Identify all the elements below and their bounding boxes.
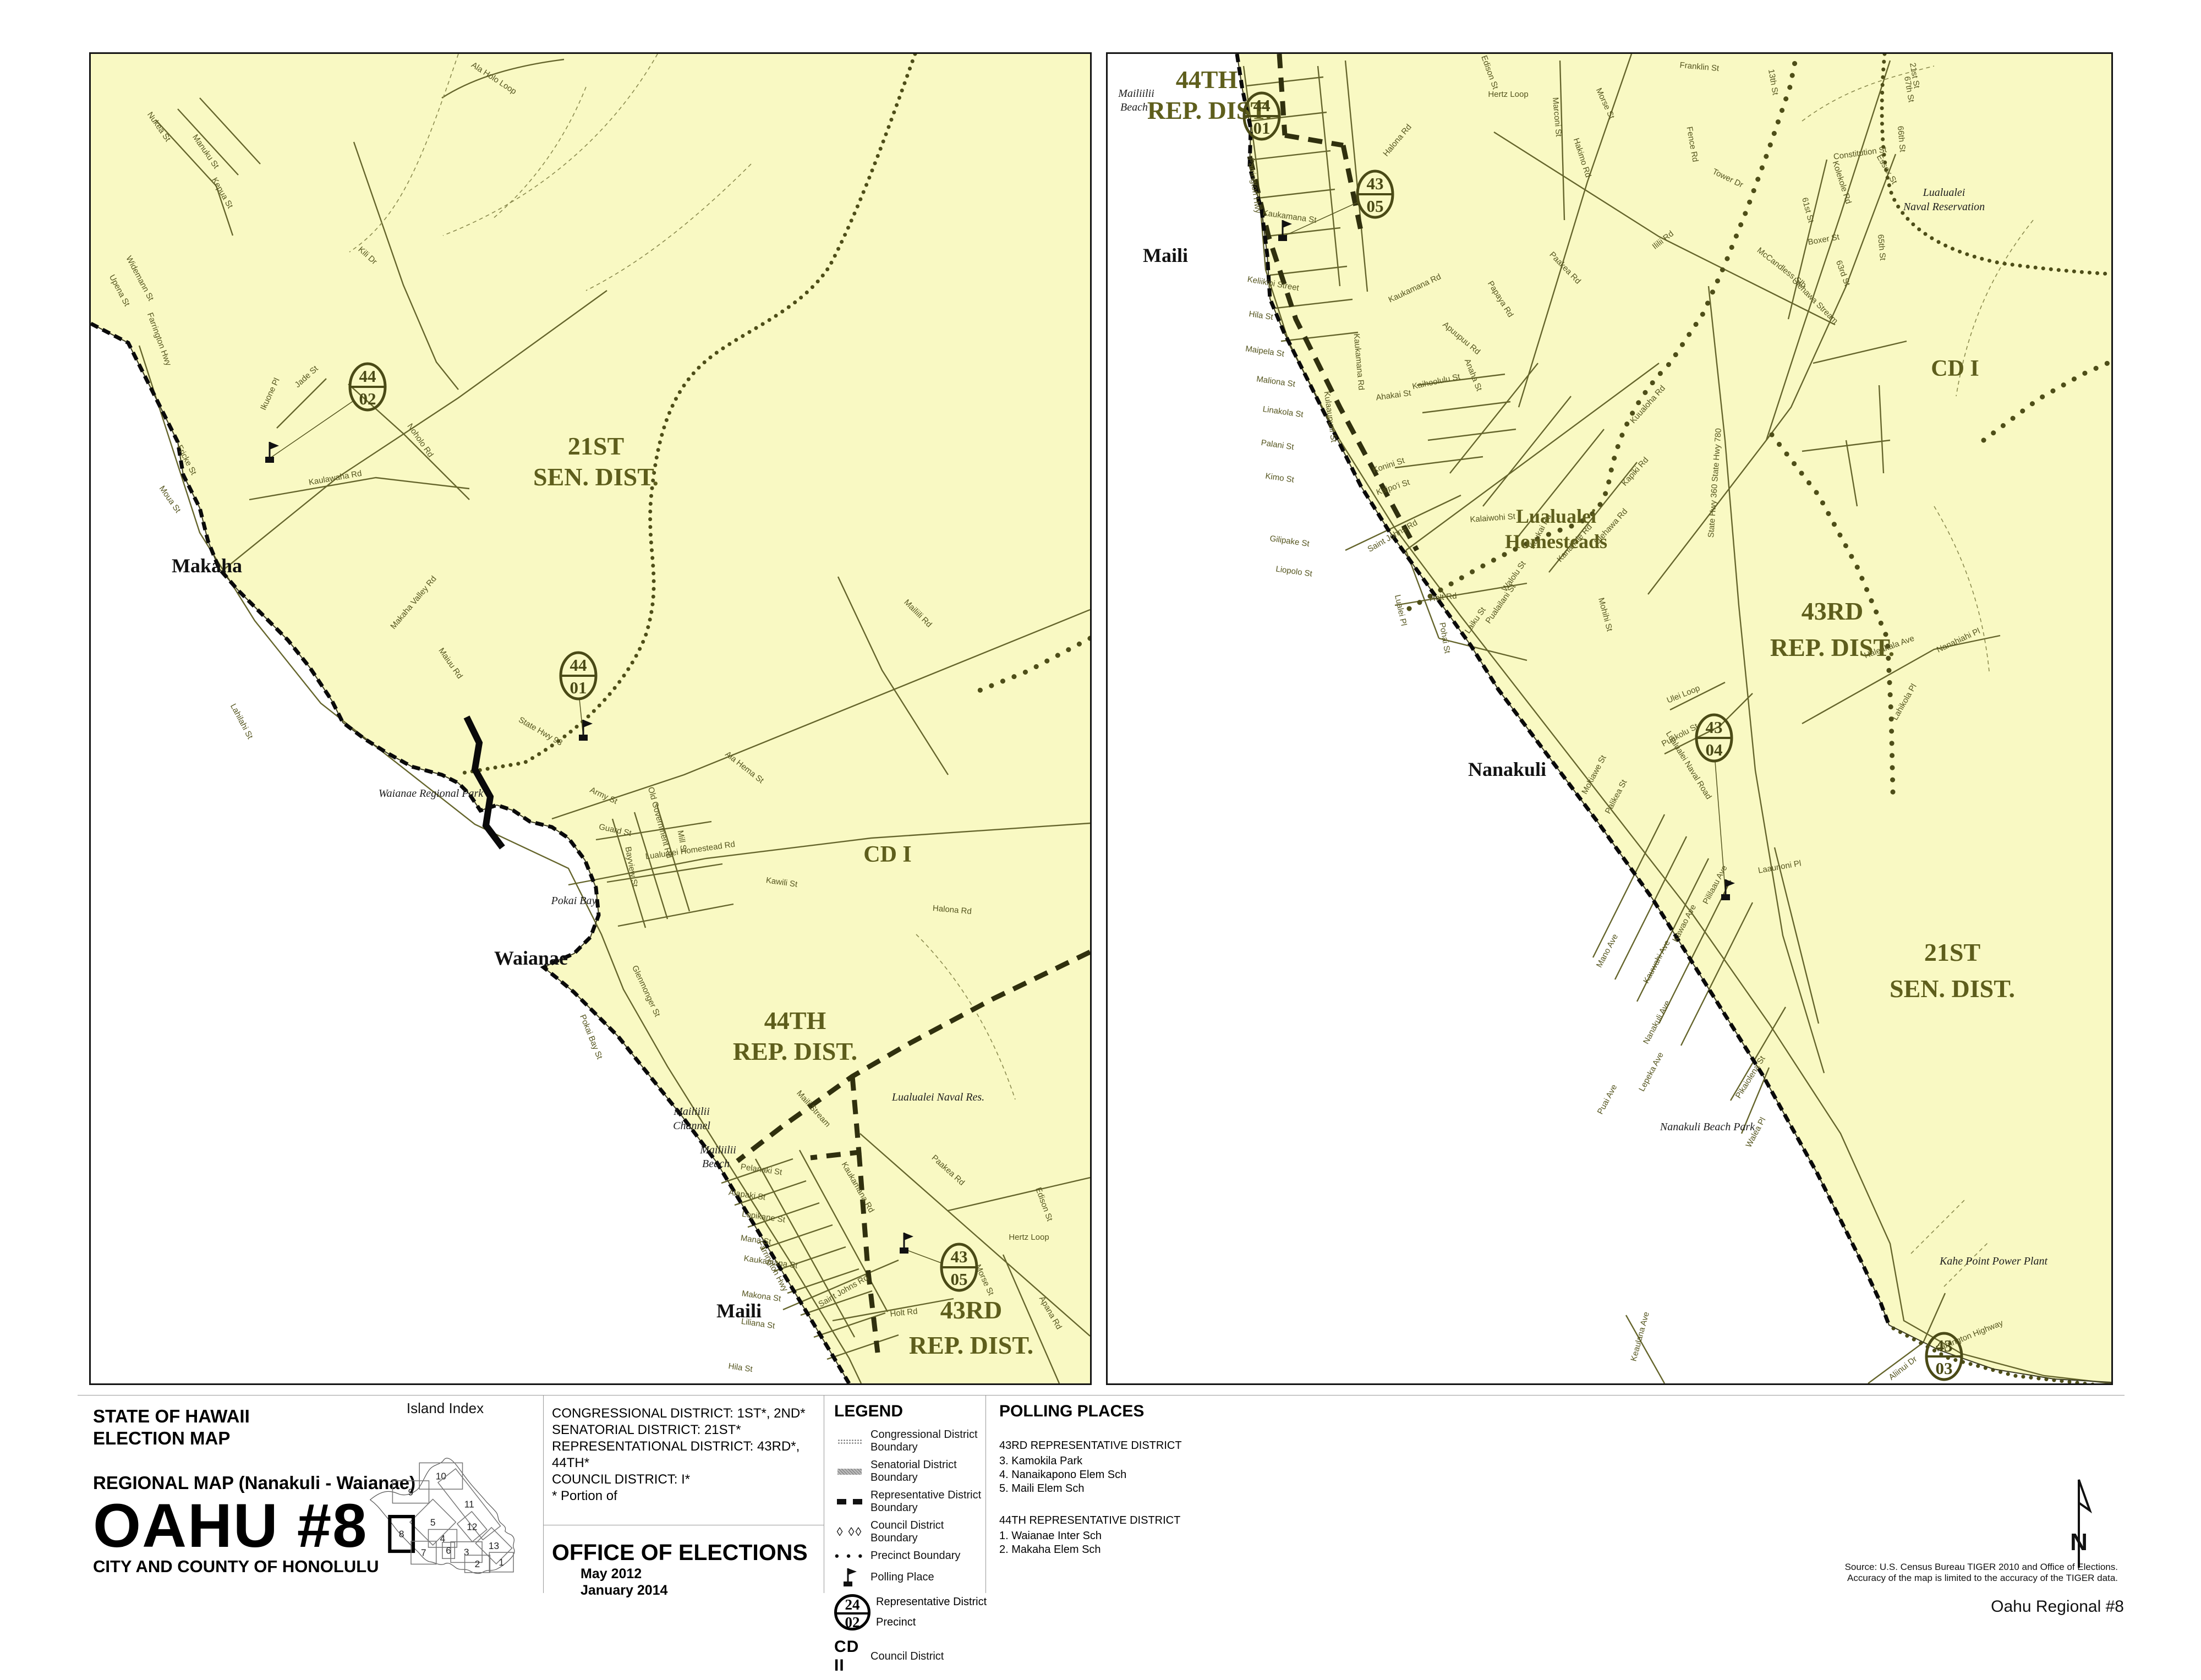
- precinct-number: 02: [359, 389, 376, 408]
- map-label: SEN. DIST.: [1890, 975, 2015, 1003]
- map-label: Pokai Bay: [551, 895, 597, 907]
- polling-group-44th: 44TH REPRESENTATIVE DISTRICT: [999, 1514, 1307, 1527]
- precinct-marker: 4305: [1357, 171, 1393, 217]
- polling-place-icon: [841, 1567, 858, 1587]
- map-label: Beach: [1120, 101, 1148, 113]
- precinct-number: 05: [951, 1269, 968, 1289]
- map-label: CD I: [863, 842, 912, 867]
- map-label: 44TH: [1176, 65, 1238, 94]
- street-label: Hertz Loop: [1488, 90, 1528, 99]
- north-arrow: N: [2056, 1475, 2105, 1574]
- precinct-number: 01: [1253, 118, 1271, 138]
- map-label: CD I: [1931, 356, 1979, 381]
- precinct-marker: 4305: [941, 1244, 977, 1290]
- office-title: OFFICE OF ELECTIONS: [552, 1540, 808, 1566]
- map-label: Mailiilii: [673, 1106, 710, 1118]
- right-map-svg: Farrington HwyKaukamana StKaukamana RdKa…: [1108, 54, 2111, 1383]
- congressional-district-line: CONGRESSIONAL DISTRICT: 1ST*, 2ND*: [552, 1405, 816, 1422]
- map-label: SEN. DIST.: [533, 463, 659, 491]
- map-label: Maili: [1143, 244, 1188, 266]
- map-label: Lualualei: [1516, 505, 1596, 527]
- polling-place-item: 4. Nanaikapono Elem Sch: [999, 1468, 1307, 1482]
- polling-places-title: POLLING PLACES: [999, 1402, 1307, 1421]
- precinct-number: 05: [1367, 196, 1384, 216]
- polling-place-item: 3. Kamokila Park: [999, 1454, 1307, 1468]
- street-label: Hertz Loop: [1009, 1233, 1049, 1242]
- legend-row-precinct-marker: 24 02 Representative District Precinct: [834, 1592, 991, 1633]
- district-number: 43: [1706, 718, 1723, 737]
- polling-list-43rd: 3. Kamokila Park 4. Nanaikapono Elem Sch…: [999, 1454, 1307, 1496]
- representative-boundary-icon: [837, 1499, 862, 1504]
- legend-title: LEGEND: [834, 1402, 991, 1421]
- map-label: Mailiilii: [699, 1144, 736, 1156]
- legend-row-council: ◊ ◊◊ Council District Boundary: [834, 1519, 991, 1545]
- precinct-marker: 4304: [1696, 715, 1732, 761]
- map-label: Homesteads: [1505, 530, 1607, 552]
- divider: [824, 1396, 824, 1593]
- district-number: 44: [1253, 96, 1271, 115]
- precinct-marker-sample: 24 02: [834, 1594, 870, 1630]
- map-label: 43RD: [1802, 597, 1863, 625]
- map-label: Lualualei: [1923, 187, 1965, 199]
- polling-places: POLLING PLACES 43RD REPRESENTATIVE DISTR…: [999, 1402, 1307, 1557]
- legend-row-representative: Representative District Boundary: [834, 1489, 991, 1514]
- map-label: Waianae: [494, 947, 568, 969]
- map-label: Waianae Regional Park: [379, 787, 484, 800]
- map-label: 21ST: [568, 432, 624, 460]
- district-number: 43: [951, 1247, 968, 1266]
- map-label: Naval Reservation: [1903, 201, 1985, 213]
- sample-precinct-number: 02: [837, 1612, 868, 1630]
- precinct-label: Precinct: [876, 1612, 987, 1633]
- district-number: 43: [1367, 174, 1384, 193]
- island-index-title: Island Index: [346, 1400, 544, 1417]
- island-index-region-number: 2: [475, 1558, 480, 1569]
- representative-district-label: Representative District: [876, 1592, 987, 1612]
- island-index-region-number: 9: [408, 1486, 414, 1497]
- island-index-map: 10911584121376321: [357, 1417, 533, 1582]
- council-boundary-icon: ◊ ◊◊: [837, 1525, 863, 1539]
- senatorial-district-line: SENATORIAL DISTRICT: 21ST*: [552, 1422, 816, 1438]
- precinct-boundary-icon: ● ● ●: [834, 1551, 865, 1561]
- legend-row-precinct-boundary: ● ● ● Precinct Boundary: [834, 1550, 991, 1562]
- polling-group-43rd: 43RD REPRESENTATIVE DISTRICT: [999, 1440, 1307, 1452]
- precinct-marker: 4402: [350, 364, 385, 410]
- map-label: Makaha: [172, 555, 242, 577]
- precinct-number: 01: [570, 678, 587, 697]
- map-label: REP. DIST.: [733, 1037, 857, 1065]
- polling-place-item: 2. Makaha Elem Sch: [999, 1543, 1307, 1557]
- map-label: Maili: [716, 1300, 762, 1322]
- legend-row-congressional: Congressional District Boundary: [834, 1429, 991, 1454]
- map-label: Nanakuli Beach Park: [1660, 1121, 1755, 1133]
- district-number: 44: [359, 366, 376, 386]
- island-index-region-number: 12: [467, 1521, 477, 1532]
- polling-list-44th: 1. Waianae Inter Sch 2. Makaha Elem Sch: [999, 1529, 1307, 1557]
- precinct-marker: 4401: [561, 653, 596, 699]
- map-label: 44TH: [764, 1006, 826, 1035]
- island-index-region-number: 8: [399, 1529, 404, 1540]
- map-label: Lualualei Naval Res.: [891, 1091, 984, 1103]
- legend-row-council-district: CD II Council District: [834, 1638, 991, 1675]
- legend-row-polling-place: Polling Place: [834, 1567, 991, 1587]
- council-district-line: COUNCIL DISTRICT: I*: [552, 1471, 816, 1488]
- date-january-2014: January 2014: [581, 1582, 808, 1599]
- map-label: 21ST: [1924, 938, 1980, 966]
- precinct-marker: 4303: [1926, 1333, 1962, 1380]
- representational-district-line: REPRESENTATIONAL DISTRICT: 43RD*, 44TH*: [552, 1438, 816, 1471]
- sheet-footer: Oahu Regional #8: [1893, 1597, 2124, 1616]
- map-label: Nanakuli: [1468, 758, 1546, 780]
- polling-place-item: 5. Maili Elem Sch: [999, 1482, 1307, 1496]
- map-panel-maili-nanakuli: Farrington HwyKaukamana StKaukamana RdKa…: [1106, 52, 2113, 1385]
- date-may-2012: May 2012: [581, 1566, 808, 1582]
- polling-place-item: 1. Waianae Inter Sch: [999, 1529, 1307, 1543]
- council-district-sample: CD II: [834, 1638, 865, 1675]
- senatorial-boundary-icon: [837, 1469, 862, 1475]
- portion-note: * Portion of: [552, 1488, 816, 1504]
- north-label: N: [2070, 1529, 2088, 1556]
- map-label: Kahe Point Power Plant: [1939, 1255, 2048, 1267]
- map-label: REP. DIST.: [1770, 633, 1895, 661]
- map-label: Beach: [702, 1158, 730, 1170]
- map-label: REP. DIST.: [909, 1331, 1033, 1359]
- legend: LEGEND Congressional District Boundary S…: [834, 1402, 991, 1680]
- island-index-region-number: 1: [499, 1557, 504, 1568]
- legend-row-senatorial: Senatorial District Boundary: [834, 1459, 991, 1484]
- precinct-number: 04: [1706, 740, 1723, 759]
- island-index-region-number: 7: [421, 1547, 426, 1558]
- district-number: 44: [570, 655, 587, 675]
- office-block: OFFICE OF ELECTIONS May 2012 January 201…: [552, 1540, 808, 1599]
- map-panel-makaha-waianae: Kili DrAla Holo LoopFarrington HwyNukea …: [89, 52, 1092, 1385]
- island-index-region-number: 13: [489, 1540, 499, 1551]
- district-info: CONGRESSIONAL DISTRICT: 1ST*, 2ND* SENAT…: [552, 1405, 816, 1504]
- info-bar: STATE OF HAWAII ELECTION MAP REGIONAL MA…: [78, 1395, 2125, 1593]
- island-index-region-number: 11: [464, 1499, 474, 1510]
- precinct-marker: 4401: [1244, 93, 1279, 139]
- precinct-number: 03: [1936, 1359, 1953, 1378]
- divider: [543, 1525, 824, 1525]
- sample-district-number: 24: [837, 1597, 868, 1612]
- map-label: Channel: [673, 1120, 710, 1132]
- island-index: Island Index 10911584121376321: [346, 1400, 544, 1585]
- island-index-region-number: 5: [430, 1517, 436, 1528]
- district-number: 43: [1936, 1336, 1953, 1355]
- congressional-boundary-icon: [837, 1439, 862, 1444]
- island-index-regions: 10911584121376321: [390, 1463, 513, 1572]
- left-map-svg: Kili DrAla Holo LoopFarrington HwyNukea …: [91, 54, 1090, 1383]
- map-label: 43RD: [940, 1296, 1002, 1324]
